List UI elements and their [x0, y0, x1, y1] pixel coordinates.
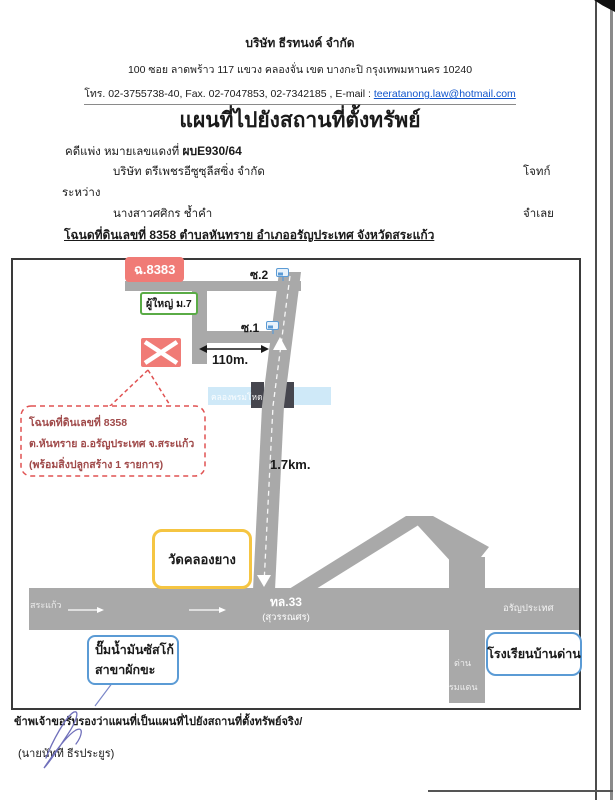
- school-box: โรงเรียนบ้านด่าน: [486, 632, 582, 676]
- soi1-sign-icon: [266, 321, 281, 335]
- scan-bottom-line: [428, 790, 613, 792]
- bubble-tail-right: [148, 370, 173, 410]
- south-destination-2: พรมแดน: [443, 680, 478, 694]
- canal-label: คลองพรมโหด: [211, 390, 263, 404]
- company-contact-line: โทร. 02-3755738-40, Fax. 02-7047853, 02-…: [84, 85, 516, 105]
- scan-edge-line: [595, 0, 597, 800]
- bubble-text: โฉนดที่ดินเลขที่ 8358 ต.หันทราย อ.อรัญปร…: [29, 413, 194, 476]
- soi2-sign-icon: [276, 268, 291, 282]
- temple-box: วัดคลองยาง: [152, 529, 252, 589]
- location-map: ฉ.8383 ซ.2 ซ.1 ผู้ใหญ่ ม.7 110m. คลองพรม…: [11, 258, 581, 710]
- measure-arrow-right: [261, 345, 269, 353]
- top-soi-road: [125, 281, 301, 291]
- bubble-line2: ต.หันทราย อ.อรัญประเทศ จ.สระแก้ว: [29, 434, 194, 455]
- east-destination: อรัญประเทศ: [503, 601, 554, 616]
- gas-station-box: ปั๊มน้ำมันซัสโก้ สาขาผักขะ: [87, 635, 179, 685]
- contact-phone-fax: โทร. 02-3755738-40, Fax. 02-7047853, 02-…: [84, 88, 374, 100]
- distance-1-7km: 1.7km.: [270, 457, 310, 472]
- page-title: แผนที่ไปยังสถานที่ตั้งทรัพย์: [0, 104, 600, 137]
- gas-pointer-line: [95, 682, 113, 706]
- case-number-line: คดีแพ่ง หมายเลขแดงที่ ผบE930/64: [65, 142, 242, 161]
- plaintiff-role: โจทก์: [523, 163, 550, 181]
- south-destination-1: ด่าน: [454, 656, 471, 670]
- deed-title-line: โฉนดที่ดินเลขที่ 8358 ตำบลหันทราย อำเภออ…: [64, 226, 434, 245]
- soi2-label: ซ.2: [250, 266, 268, 285]
- bubble-tail-left: [108, 370, 148, 408]
- plaintiff-name: บริษัท ตรีเพชรอีซูซุลีสซิ่ง จำกัด: [113, 163, 265, 181]
- highway-subname: (สุวรรณศร): [246, 610, 326, 625]
- soi1-label: ซ.1: [241, 319, 259, 338]
- west-destination: สระแก้ว: [30, 598, 61, 612]
- main-road-lower: [253, 406, 284, 590]
- bubble-line1: โฉนดที่ดินเลขที่ 8358: [29, 413, 194, 434]
- case-number: ผบE930/64: [182, 144, 241, 158]
- defendant-name: นางสาวศศิกร ช้ำคำ: [113, 205, 212, 223]
- letterhead: บริษัท ธีรทนงค์ จำกัด 100 ซอย ลาดพร้าว 1…: [0, 34, 600, 105]
- company-name: บริษัท ธีรทนงค์ จำกัด: [0, 34, 600, 53]
- bubble-line3: (พร้อมสิ่งปลูกสร้าง 1 รายการ): [29, 455, 194, 476]
- gas-station-line1: ปั๊มน้ำมันซัสโก้: [95, 640, 171, 660]
- deed-badge: ฉ.8383: [125, 257, 184, 282]
- case-number-prefix: คดีแพ่ง หมายเลขแดงที่: [65, 146, 182, 158]
- email-link[interactable]: teeratanong.law@hotmail.com: [374, 88, 516, 100]
- village-head-box: ผู้ใหญ่ ม.7: [140, 292, 198, 315]
- defendant-role: จำเลย: [523, 205, 554, 223]
- gas-station-line2: สาขาผักขะ: [95, 660, 171, 680]
- between-label: ระหว่าง: [62, 184, 100, 202]
- scan-corner-mark: [594, 0, 615, 12]
- diagonal-road-left: [289, 516, 433, 589]
- distance-110m: 110m.: [212, 352, 248, 367]
- company-address: 100 ซอย ลาดพร้าว 117 แขวง คลองจั่น เขต บ…: [0, 61, 600, 78]
- scan-edge-strip: [610, 0, 613, 800]
- signature: [32, 706, 102, 770]
- document-page: บริษัท ธีรทนงค์ จำกัด 100 ซอย ลาดพร้าว 1…: [0, 0, 615, 800]
